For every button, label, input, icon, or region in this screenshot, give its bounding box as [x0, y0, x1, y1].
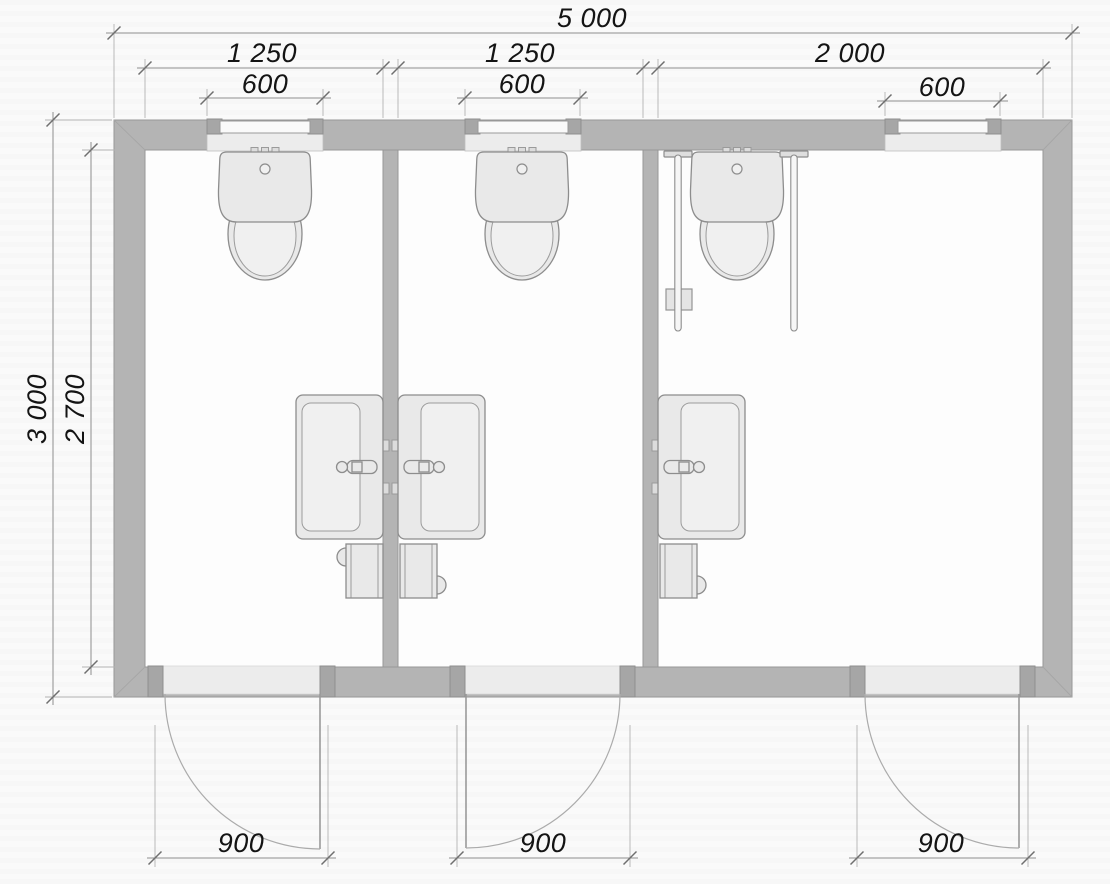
door-jamb	[1020, 666, 1035, 697]
sink-2	[392, 395, 485, 539]
dim-label-window-1-width: 600	[242, 69, 289, 99]
door-jamb	[850, 666, 865, 697]
sink-1	[296, 395, 389, 539]
dim-label-room-2-width: 1 250	[485, 38, 555, 68]
dim-label-room-3-width: 2 000	[814, 38, 885, 68]
dim-label-overall-depth: 3 000	[22, 374, 52, 444]
window-frame	[478, 121, 568, 133]
dim-label-door-1-width: 900	[218, 828, 265, 858]
dim-label-room-1-width: 1 250	[227, 38, 297, 68]
door-jamb	[620, 666, 635, 697]
partition-wall-1	[383, 150, 398, 667]
window-3	[885, 119, 1001, 151]
sink-3	[652, 395, 745, 539]
door-threshold	[865, 666, 1020, 694]
dim-label-door-3-width: 900	[918, 828, 965, 858]
dim-label-window-3-width: 600	[919, 72, 966, 102]
door-swing-arc	[865, 694, 1019, 848]
door-swing-arc	[466, 694, 620, 848]
dim-label-door-2-width: 900	[520, 828, 567, 858]
floor-plan: 5 000 1 250 1 250 2 000 600 600 600 3 00…	[0, 0, 1110, 879]
door-swing-arc	[165, 694, 320, 849]
dim-label-overall-width: 5 000	[557, 3, 627, 33]
floor-plan-canvas: 5 000 1 250 1 250 2 000 600 600 600 3 00…	[0, 0, 1110, 879]
door-threshold	[163, 666, 320, 694]
door-jamb	[320, 666, 335, 697]
partition-wall-2	[643, 150, 658, 667]
door-3	[850, 666, 1035, 848]
window-2	[465, 119, 581, 151]
window-frame	[220, 121, 310, 133]
dim-label-window-2-width: 600	[499, 69, 546, 99]
window-frame	[898, 121, 988, 133]
door-threshold	[465, 666, 620, 694]
window-1	[207, 119, 323, 151]
window-sill	[885, 133, 1001, 151]
dim-label-interior-depth: 2 700	[60, 374, 90, 445]
door-jamb	[450, 666, 465, 697]
door-2	[450, 666, 635, 848]
door-jamb	[148, 666, 163, 697]
door-1	[148, 666, 335, 849]
grab-bar-stem	[675, 155, 681, 331]
